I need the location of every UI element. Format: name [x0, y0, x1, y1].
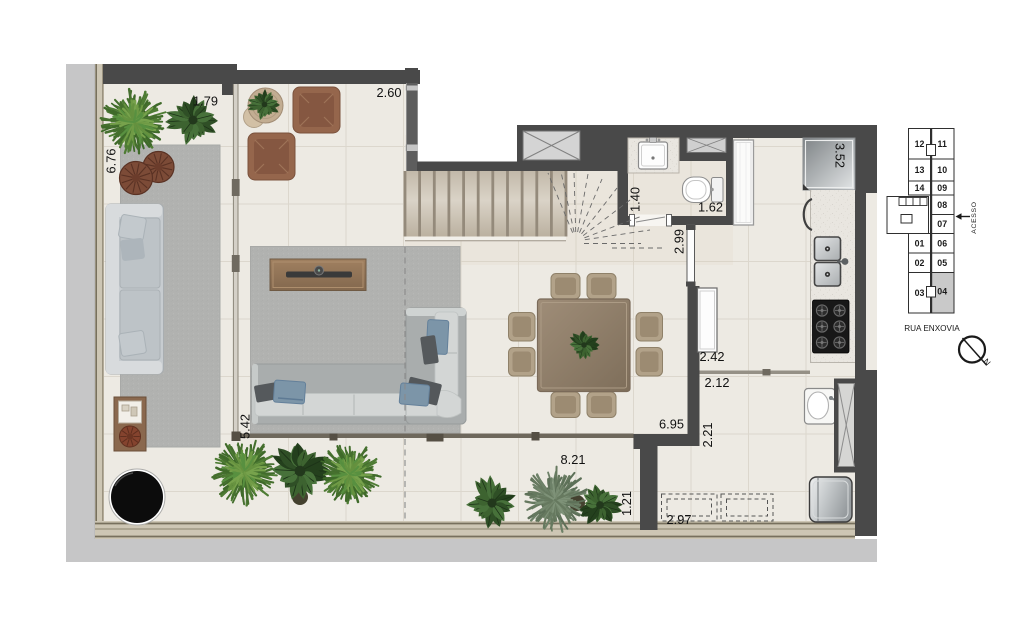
svg-text:09: 09: [937, 183, 947, 193]
svg-text:2.97: 2.97: [667, 512, 692, 527]
svg-text:1.21: 1.21: [619, 491, 634, 516]
svg-text:04: 04: [937, 287, 947, 297]
svg-text:01: 01: [915, 238, 925, 248]
svg-text:2.12: 2.12: [705, 375, 730, 390]
svg-text:03: 03: [915, 288, 925, 298]
svg-text:05: 05: [937, 258, 947, 268]
svg-text:11: 11: [938, 139, 947, 149]
svg-text:1.79: 1.79: [193, 94, 218, 109]
svg-text:08: 08: [937, 200, 947, 210]
svg-text:02: 02: [915, 258, 925, 268]
svg-text:2.60: 2.60: [377, 85, 402, 100]
svg-text:3.52: 3.52: [833, 143, 848, 168]
svg-text:2.42: 2.42: [700, 349, 725, 364]
svg-text:8.21: 8.21: [561, 452, 586, 467]
svg-text:2.99: 2.99: [672, 229, 687, 254]
svg-text:6.95: 6.95: [659, 417, 684, 432]
svg-text:5.42: 5.42: [238, 414, 253, 439]
svg-text:2.21: 2.21: [700, 423, 715, 448]
svg-text:1.62: 1.62: [698, 200, 723, 215]
svg-text:1.40: 1.40: [628, 187, 643, 212]
svg-text:13: 13: [915, 165, 925, 175]
svg-text:07: 07: [937, 219, 947, 229]
svg-text:RUA ENXOVIA: RUA ENXOVIA: [904, 324, 960, 333]
svg-text:6.76: 6.76: [103, 149, 118, 174]
svg-text:14: 14: [915, 183, 925, 193]
svg-text:06: 06: [937, 238, 947, 248]
svg-text:10: 10: [937, 165, 947, 175]
svg-text:12: 12: [915, 139, 925, 149]
svg-text:ACESSO: ACESSO: [971, 201, 978, 234]
